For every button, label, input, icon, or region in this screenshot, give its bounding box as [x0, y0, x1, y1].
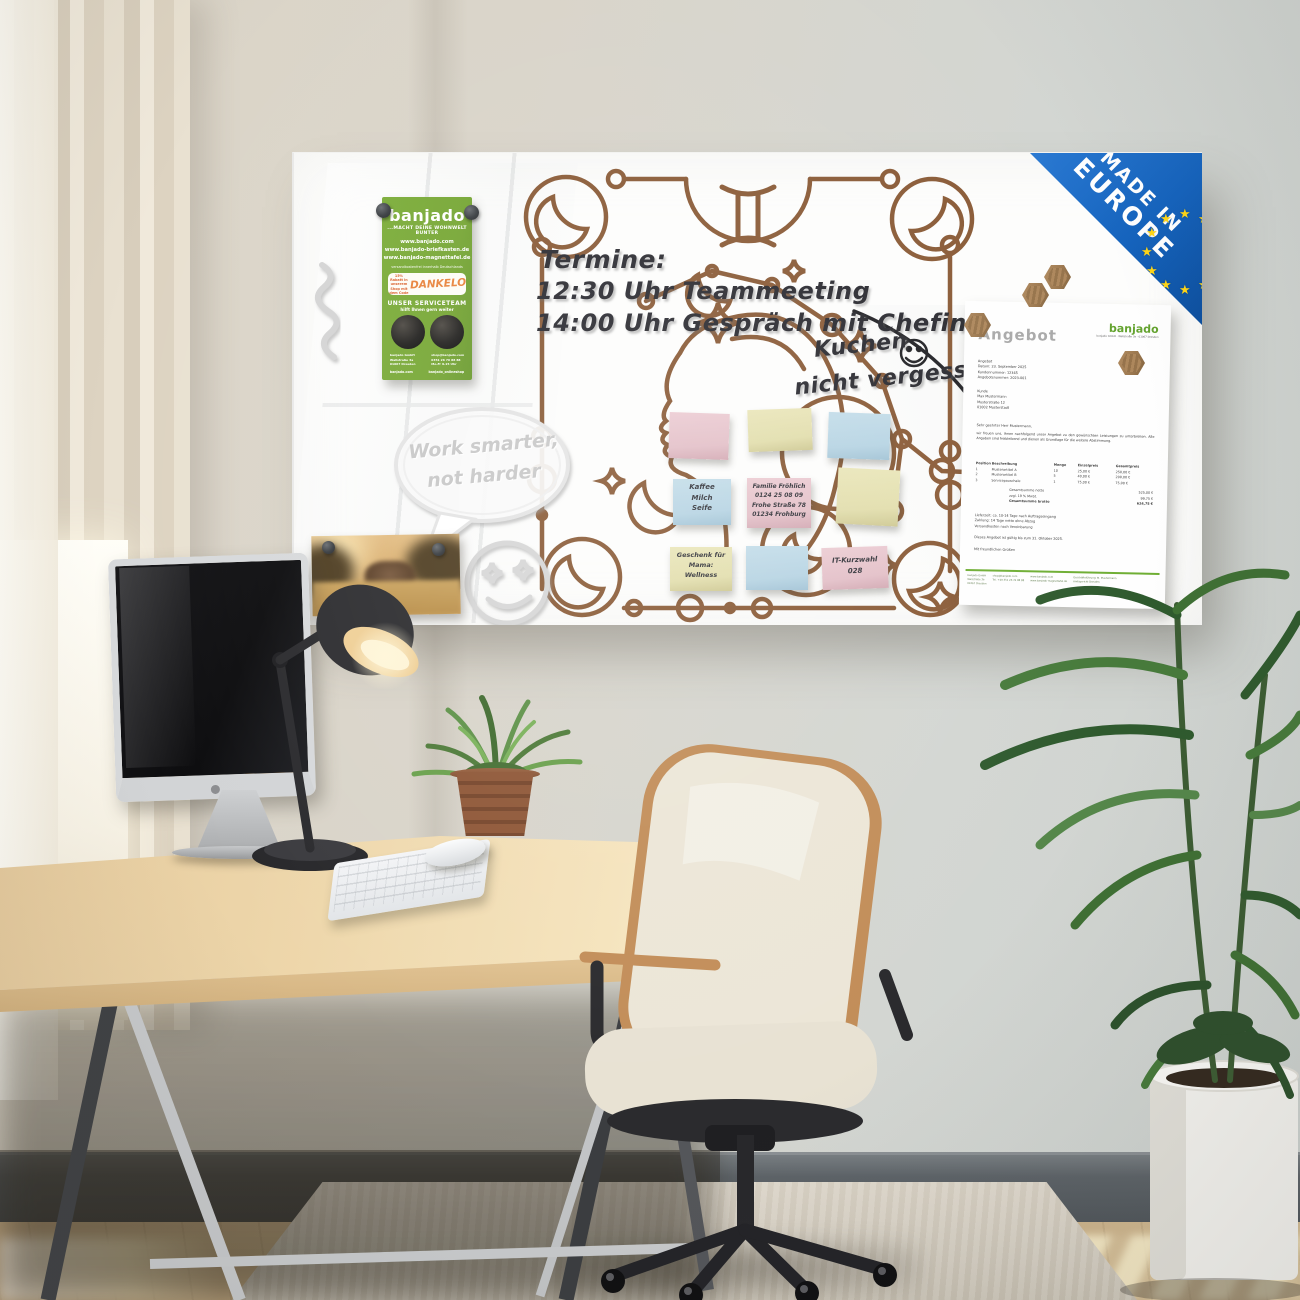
flyer-social-web: banjado.com: [390, 370, 413, 374]
eu-star-icon: ★: [1160, 212, 1172, 227]
desk-lamp: [235, 560, 435, 880]
note-text: Geschenk für Mama: Wellness: [670, 547, 732, 580]
flyer-service-title: UNSER SERVICETEAM: [382, 300, 472, 307]
sticky-note-family-contact: Familie Fröhlich 0124 25 08 09 Frohe Str…: [747, 478, 811, 528]
flyer-dog-photos: [382, 312, 472, 349]
note-text: IT-Kurzwahl 028: [821, 546, 888, 577]
document-terms: Lieferzeit: ca. 10-14 Tage nach Auftrags…: [974, 513, 1056, 531]
sticky-note-shopping: Kaffee Milch Seife: [673, 479, 731, 525]
round-magnet: [322, 541, 335, 554]
fern-pot: [452, 772, 538, 836]
flyer-tagline: ...MACHT DEINE WOHNWELT BUNTER: [382, 226, 472, 236]
eu-star-icon: ★: [1141, 245, 1153, 260]
round-magnet: [376, 203, 391, 218]
office-chair: [555, 735, 945, 1300]
note-text: Kaffee Milch Seife: [673, 479, 731, 514]
flyer-contact-left: banjado GmbH Wallstraße 3a 01067 Dresden: [390, 353, 416, 367]
sticky-note-blank: [836, 467, 901, 526]
eu-star-icon: ★: [1198, 278, 1202, 293]
flyer-social-instagram: banjado_onlineshop: [428, 370, 464, 374]
flyer-discount-text: 15% Rabatt in unserem Shop mit dem Code: [388, 274, 410, 295]
note-text: Familie Fröhlich 0124 25 08 09 Frohe Str…: [747, 478, 811, 519]
dog-photo-2: [430, 315, 464, 349]
document-salutation: Sehr geehrter Herr Mustermann,: [977, 423, 1033, 430]
document-customer: Kunde Max Mustermann Musterstraße 12 010…: [977, 389, 1010, 411]
table-cell: 75,00 €: [1115, 481, 1153, 487]
star-eyes-smiley-icon: [467, 543, 547, 623]
eu-star-icon: ★: [1198, 212, 1202, 227]
home-office-scene: { "badge": { "line1": "MADE IN", "line2"…: [0, 0, 1300, 1300]
screen-reflection: [119, 566, 196, 768]
flyer-discount-box: 15% Rabatt in unserem Shop mit dem Code …: [388, 273, 466, 295]
eu-star-icon: ★: [1179, 283, 1191, 298]
document-closing: Mit freundlichen Grüßen: [974, 547, 1015, 553]
eu-star-icon: ★: [1179, 207, 1191, 222]
sticky-note-blank: [668, 412, 730, 460]
flyer-micro-note: versandkostenfrei innerhalb Deutschlands: [382, 265, 472, 269]
dog-photo-1: [391, 315, 425, 349]
table-cell: 75,00 €: [1077, 480, 1115, 486]
table-cell: 1: [1053, 480, 1077, 486]
document-validity: Dieses Angebot ist gültig bis zum 31. Ok…: [974, 535, 1063, 542]
flyer-contact-right: shop@banjado.com 0351 26 76 88 88 Mo-Fr …: [431, 353, 464, 367]
handwriting-termine-1: 12:30 Uhr Teammeeting: [536, 277, 870, 305]
document-logo: banjado: [1109, 322, 1159, 336]
apple-logo-icon: [211, 785, 220, 794]
document-table: Position Beschreibung Menge Einzelpreis …: [975, 461, 1153, 487]
flyer-url-3: www.banjado-magnettafel.de: [382, 255, 472, 263]
flyer-discount-code: DANKELO: [410, 277, 467, 292]
flyer-url-2: www.banjado-briefkasten.de: [382, 247, 472, 255]
flyer-url-1: www.banjado.com: [382, 239, 472, 247]
eu-star-icon: ★: [1146, 226, 1158, 241]
table-cell: Servicepauschale: [991, 478, 1053, 485]
flyer-brand-logo: banjado: [382, 206, 472, 225]
palm-plant: [945, 555, 1300, 1300]
document-logo-subline: banjado GmbH · Wallstraße 3a · 01067 Dre…: [1096, 335, 1158, 339]
sticky-note-blank: [747, 408, 812, 452]
round-magnet: [464, 205, 479, 220]
document-meta: Angebot Datum: 23. September 2025 Kunden…: [978, 359, 1027, 382]
silver-squiggle-doodle: [318, 265, 337, 357]
table-cell: 3: [975, 478, 991, 484]
document-body: wir freuen uns, Ihnen nachfolgend unser …: [976, 431, 1154, 445]
banjado-flyer: banjado ...MACHT DEINE WOHNWELT BUNTER w…: [382, 197, 472, 380]
sticky-note-blank: [827, 412, 891, 460]
round-magnet: [432, 543, 445, 556]
sticky-note-it: IT-Kurzwahl 028: [821, 546, 888, 590]
sticky-note-gift: Geschenk für Mama: Wellness: [670, 547, 732, 591]
handwriting-termine-title: Termine:: [540, 245, 667, 274]
sticky-note-blank: [746, 546, 808, 590]
document-totals: Gesamtsumme netto525,00 € zzgl. 19 % MwS…: [1009, 488, 1153, 508]
total-value: 624,75 €: [1137, 502, 1153, 508]
total-label: Gesamtsumme brutto: [1009, 499, 1050, 505]
document-title: Angebot: [978, 325, 1057, 345]
